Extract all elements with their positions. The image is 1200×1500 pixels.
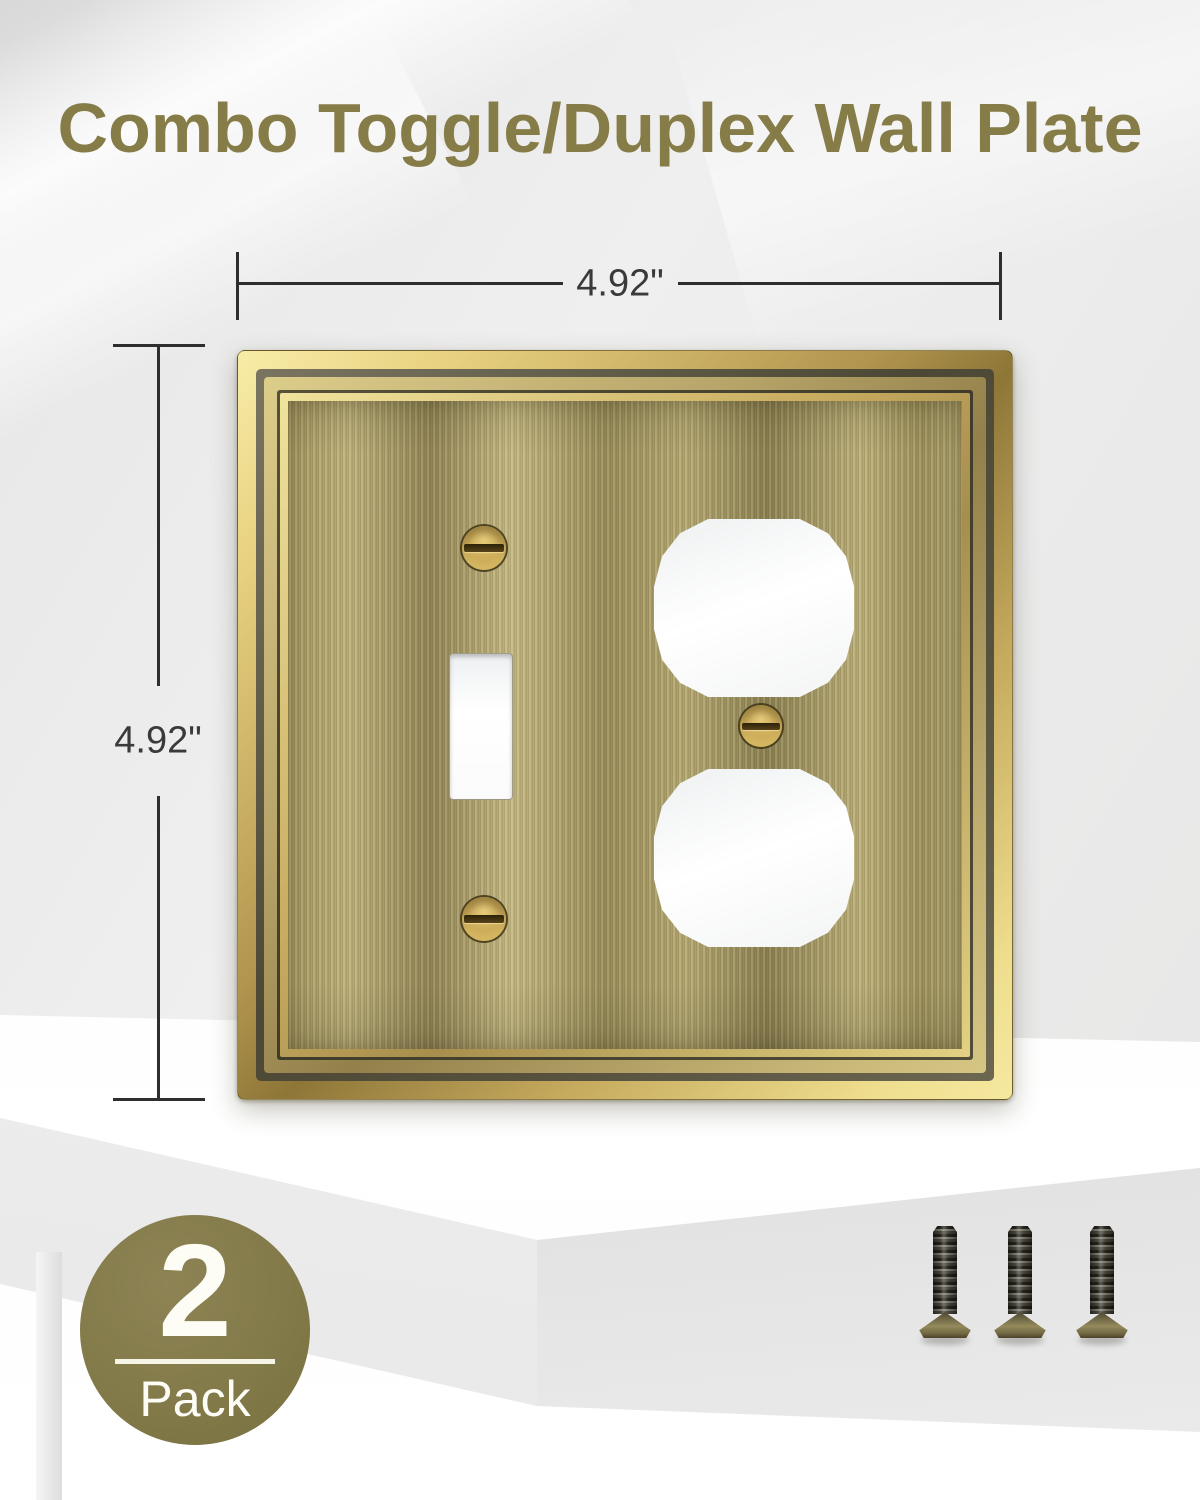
plate-frame-outer-molding bbox=[237, 350, 1013, 1100]
mounting-screw-icon bbox=[992, 1226, 1048, 1338]
plate-frame-mid-molding bbox=[264, 377, 986, 1073]
width-dimension-tick-right bbox=[999, 252, 1002, 320]
background-light-beam bbox=[669, 0, 1200, 348]
pedestal-leg bbox=[36, 1252, 62, 1500]
pack-label: Pack bbox=[139, 1370, 250, 1428]
mounting-screw-icon bbox=[1074, 1226, 1130, 1338]
duplex-outlet-cutout-bottom bbox=[654, 769, 854, 947]
mounting-screw-icon bbox=[917, 1226, 973, 1338]
screw-head bbox=[1074, 1312, 1130, 1338]
plate-frame-groove bbox=[256, 369, 994, 1081]
screw-head bbox=[917, 1312, 973, 1338]
width-dimension-tick-left bbox=[236, 252, 239, 320]
plate-frame-inner-line bbox=[277, 390, 973, 1060]
plate-brushed-field bbox=[288, 401, 962, 1049]
product-title: Combo Toggle/Duplex Wall Plate bbox=[0, 88, 1200, 168]
screw-head bbox=[992, 1312, 1048, 1338]
width-dimension-line-left bbox=[236, 282, 563, 285]
product-image: Combo Toggle/Duplex Wall Plate 4.92" 4.9… bbox=[0, 0, 1200, 1500]
screw-thread bbox=[1008, 1226, 1032, 1314]
plate-screw-bottom-icon bbox=[462, 897, 506, 941]
pack-count: 2 bbox=[158, 1225, 231, 1357]
screw-thread bbox=[1090, 1226, 1114, 1314]
pack-badge: 2 Pack bbox=[80, 1215, 310, 1445]
duplex-outlet-cutout-top bbox=[654, 519, 854, 697]
plate-screw-middle-icon bbox=[740, 705, 782, 747]
plate-frame-inner-lip bbox=[280, 393, 970, 1057]
background-light-beam bbox=[0, 0, 640, 368]
width-dimension-line-right bbox=[678, 282, 1002, 285]
toggle-switch-cutout bbox=[449, 653, 513, 800]
wall-plate bbox=[237, 350, 1013, 1100]
height-dimension-line-bottom bbox=[157, 796, 160, 1101]
pack-badge-divider bbox=[115, 1359, 275, 1364]
screw-thread bbox=[933, 1226, 957, 1314]
plate-screw-top-icon bbox=[462, 526, 506, 570]
height-dimension-line-top bbox=[157, 344, 160, 686]
width-dimension-label: 4.92" bbox=[576, 263, 663, 306]
height-dimension-label: 4.92" bbox=[114, 720, 201, 763]
